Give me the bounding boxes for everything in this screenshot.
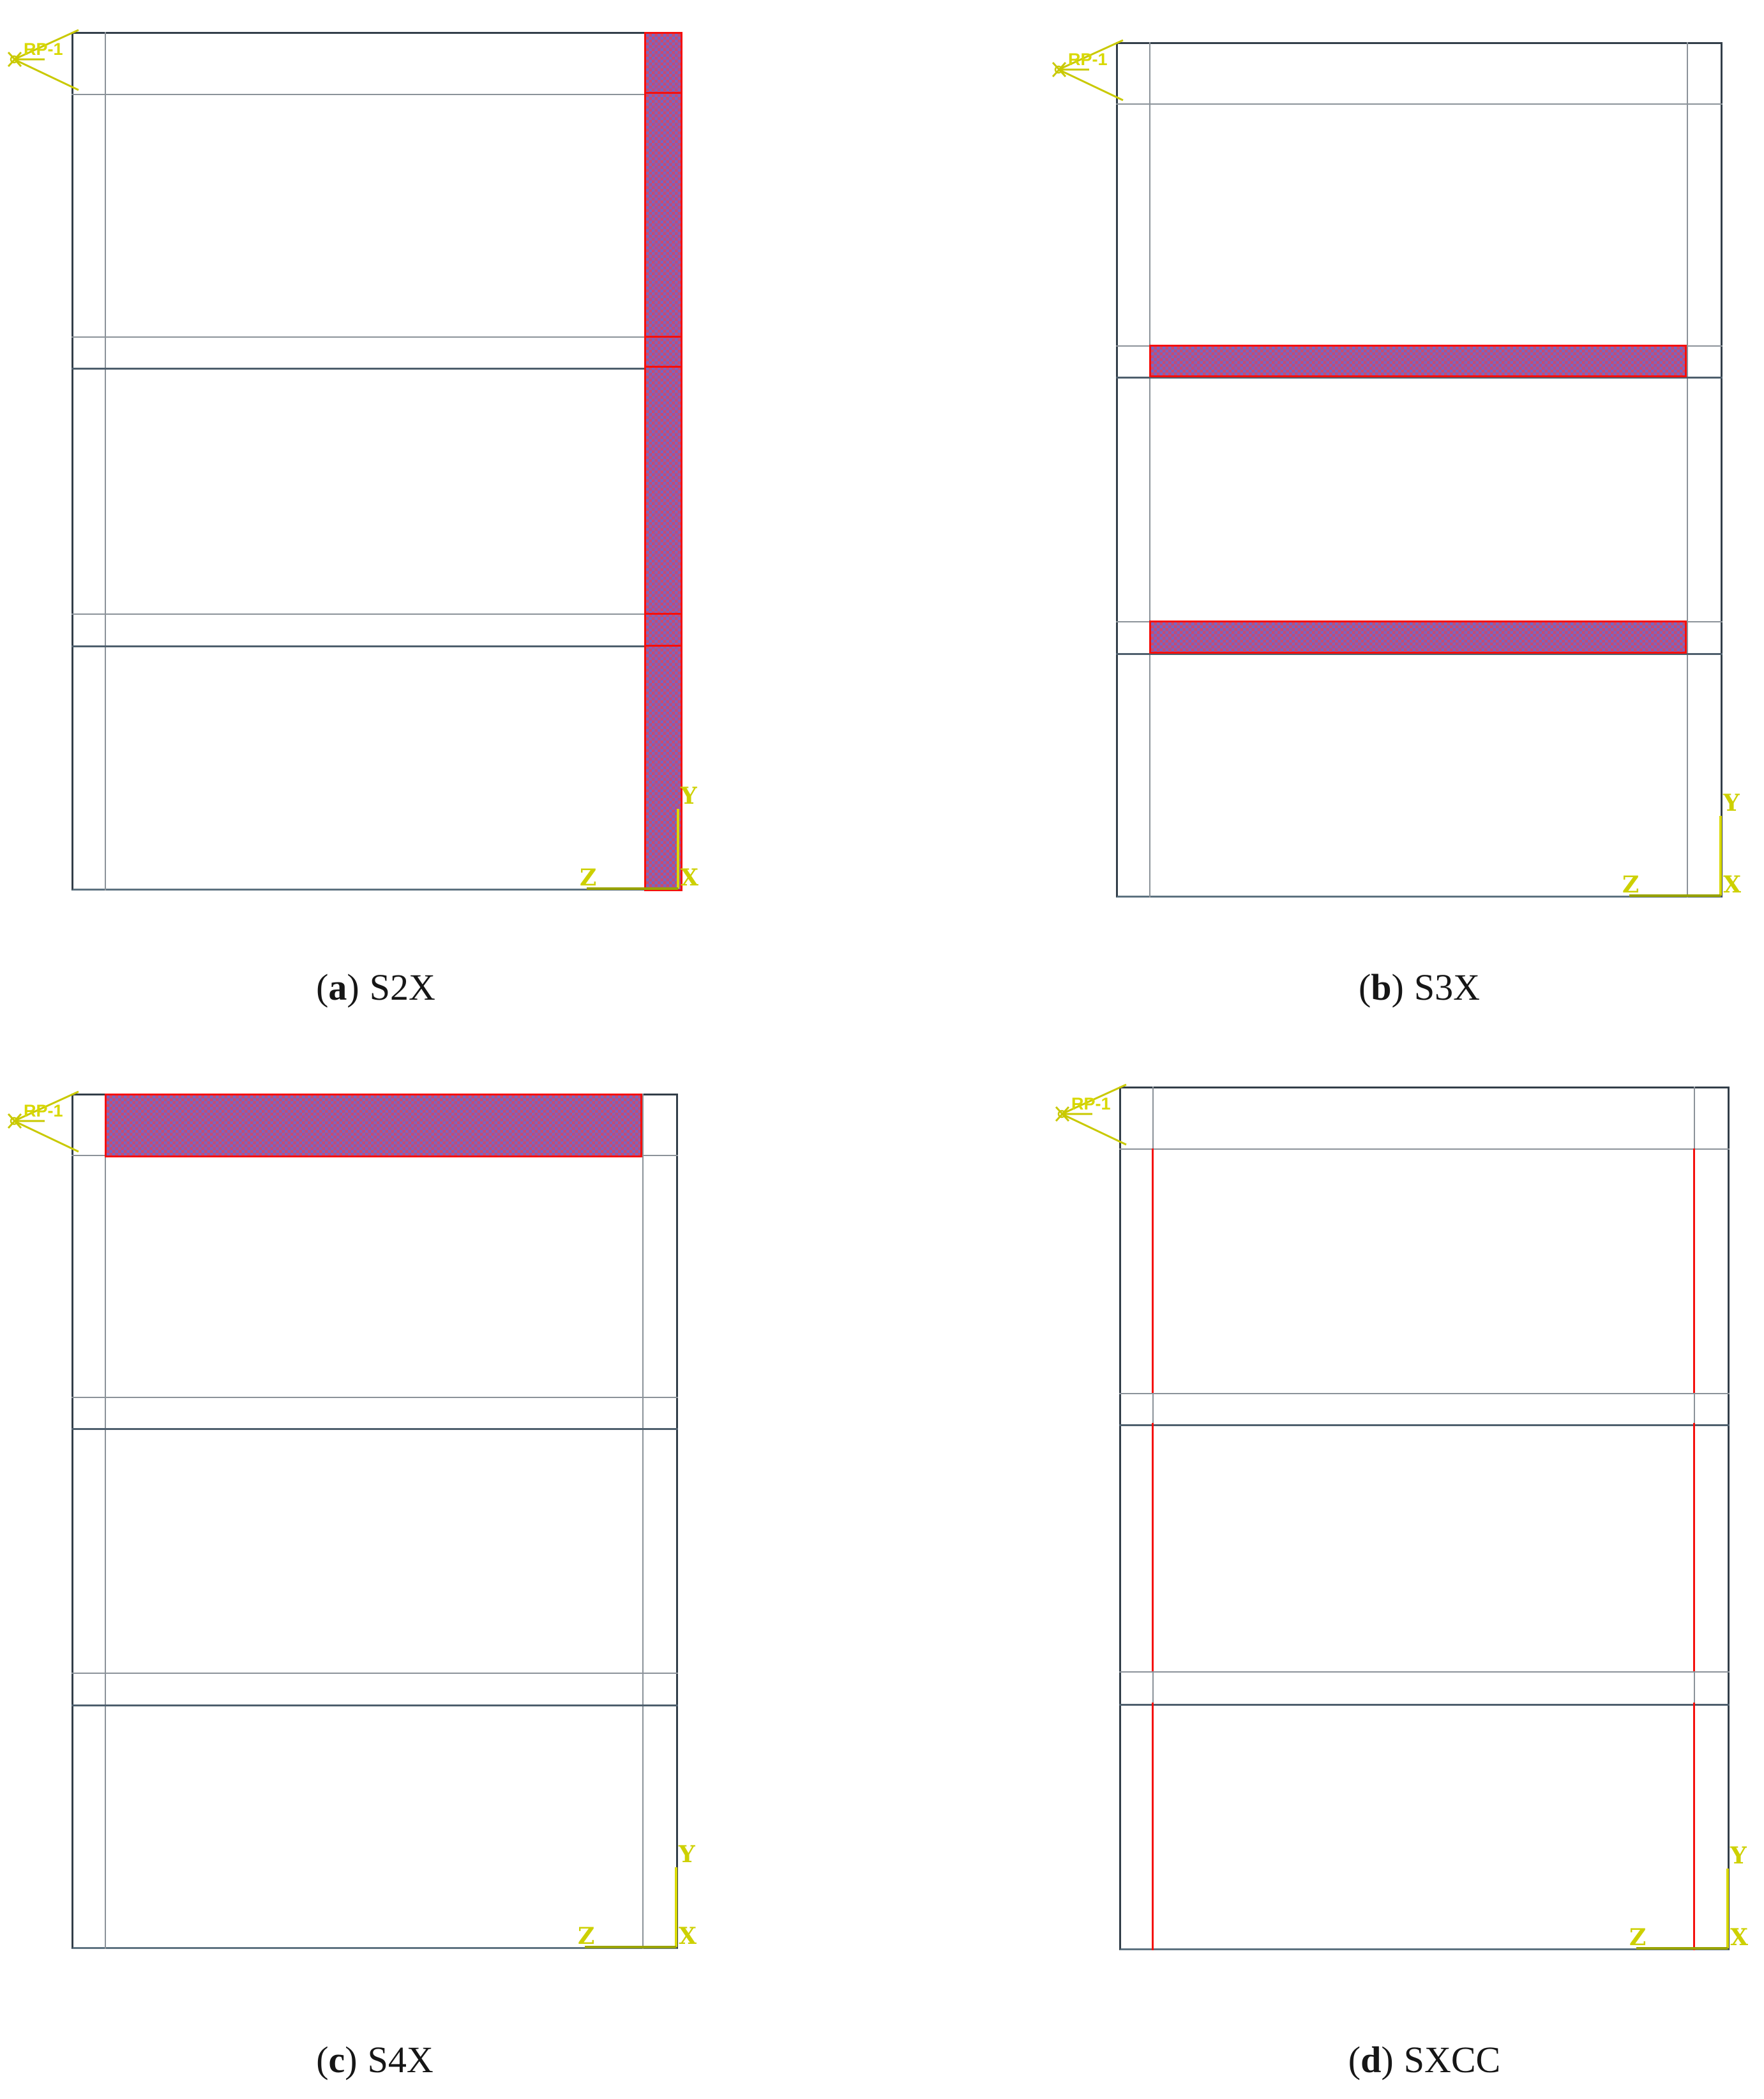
- strengthened-edge-line: [1152, 1148, 1154, 1393]
- model-panel-s2x: RP-1 Y Z X: [72, 32, 680, 891]
- floor-band-lower: [72, 1673, 678, 1706]
- strengthened-floor-beam-lower: [1149, 621, 1687, 654]
- caption-index: (c): [316, 2039, 357, 2080]
- axis-triad-icon: Y Z X: [534, 1829, 707, 1953]
- left-column-inner-line: [1149, 42, 1150, 898]
- frame-outline: RP-1 Y Z X: [1116, 42, 1723, 898]
- strip-divider: [645, 92, 681, 94]
- caption-index: (d): [1348, 2039, 1394, 2080]
- roof-beam-bottom-line: [1116, 103, 1723, 105]
- axis-x-label: X: [1730, 1924, 1748, 1951]
- model-panel-sxcc: RP-1 Y Z X: [1119, 1087, 1730, 1950]
- strengthened-edge-line: [1152, 1703, 1154, 1950]
- axis-triad-icon: Y Z X: [536, 771, 709, 895]
- model-panel-s3x: RP-1 Y Z X: [1116, 42, 1723, 898]
- rp-fan-line: [14, 1121, 79, 1152]
- reference-point-marker-icon: RP-1: [8, 26, 80, 98]
- caption-label: S2X: [370, 967, 435, 1008]
- rp-label: RP-1: [24, 1101, 63, 1120]
- axis-triad-icon: Y Z X: [1579, 778, 1751, 902]
- axis-x-label: X: [1723, 871, 1741, 898]
- axis-y-label: Y: [678, 1841, 696, 1868]
- strip-divider: [645, 366, 681, 368]
- caption-index: (b): [1359, 967, 1404, 1008]
- right-column-inner-line: [1687, 42, 1688, 898]
- floor-band-lower: [1119, 1671, 1730, 1705]
- strengthened-right-column: [644, 32, 682, 891]
- strip-divider: [645, 336, 681, 338]
- reference-point-marker-icon: RP-1: [1052, 36, 1124, 108]
- frame-outline: RP-1 Y Z X: [72, 1094, 678, 1949]
- axis-y-label: Y: [680, 783, 698, 809]
- caption-label: SXCC: [1404, 2039, 1501, 2080]
- rp-label: RP-1: [24, 40, 63, 59]
- rp-fan-line: [1062, 1114, 1126, 1145]
- frame-outline: RP-1 Y Z X: [1119, 1087, 1730, 1950]
- strip-divider: [645, 613, 681, 615]
- rp-fan-line: [14, 59, 79, 90]
- strengthened-edge-line: [1693, 1148, 1695, 1393]
- roof-beam-bottom-line: [1119, 1148, 1730, 1150]
- caption-label: S3X: [1414, 967, 1480, 1008]
- roof-beam-bottom-line: [72, 94, 680, 95]
- axis-x-label: X: [679, 1923, 697, 1950]
- floor-band-upper: [72, 1397, 678, 1430]
- caption-panel-d: (d)SXCC: [1119, 2038, 1730, 2082]
- axis-z-label: Z: [580, 864, 596, 891]
- strengthened-edge-line: [1693, 1423, 1695, 1671]
- rp-fan-line: [1059, 70, 1123, 100]
- reference-point-marker-icon: RP-1: [1055, 1081, 1127, 1152]
- rp-label: RP-1: [1071, 1094, 1111, 1113]
- caption-label: S4X: [368, 2039, 433, 2080]
- caption-panel-b: (b)S3X: [1116, 965, 1723, 1010]
- caption-index: (a): [316, 967, 359, 1008]
- right-column-inner-line: [642, 1094, 644, 1949]
- strengthened-roof-beam: [105, 1094, 642, 1157]
- caption-panel-c: (c)S4X: [72, 2038, 678, 2082]
- axis-x-label: X: [681, 864, 698, 891]
- figure-root: { "figure": { "panels": [ { "key": "a", …: [0, 0, 1764, 2099]
- axis-triad-icon: Y Z X: [1586, 1830, 1758, 1955]
- floor-band-upper: [72, 336, 680, 370]
- model-panel-s4x: RP-1 Y Z X: [72, 1094, 678, 1949]
- axis-z-label: Z: [578, 1923, 594, 1950]
- strengthened-floor-beam-upper: [1149, 345, 1687, 377]
- axis-z-label: Z: [1622, 871, 1639, 898]
- left-column-inner-line: [105, 1094, 106, 1949]
- frame-outline: RP-1 Y Z X: [72, 32, 680, 891]
- axis-z-label: Z: [1629, 1924, 1646, 1951]
- caption-panel-a: (a)S2X: [72, 965, 680, 1010]
- axis-y-label: Y: [1730, 1842, 1747, 1869]
- floor-band-lower: [72, 613, 680, 647]
- strip-divider: [645, 645, 681, 647]
- left-column-inner-line: [105, 32, 106, 891]
- rp-label: RP-1: [1068, 50, 1108, 69]
- floor-band-upper: [1119, 1393, 1730, 1426]
- reference-point-marker-icon: RP-1: [8, 1088, 80, 1159]
- axis-y-label: Y: [1723, 790, 1740, 816]
- strengthened-edge-line: [1152, 1423, 1154, 1671]
